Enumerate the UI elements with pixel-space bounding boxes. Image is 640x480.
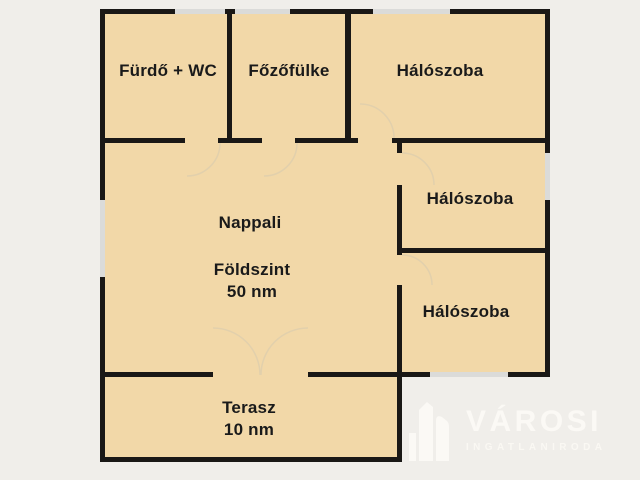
window-bottom-bedroom	[430, 372, 508, 377]
watermark-brand: VÁROSI	[466, 407, 606, 437]
building-tower-right	[436, 416, 449, 461]
door-opening-bathroom	[185, 138, 218, 143]
wall-kitchenette-bedroom	[345, 9, 351, 143]
room-label-terrace: Terasz	[222, 398, 276, 418]
door-opening-bedroom-middle	[397, 153, 402, 185]
door-opening-bedroom-bottom	[397, 255, 402, 285]
building-logo-icon	[406, 397, 454, 461]
window-right-bedroom	[545, 153, 550, 200]
door-opening-bedroom-top	[358, 138, 392, 143]
door-opening-kitchenette	[262, 138, 295, 143]
room-label-bedroom-bottom: Hálószoba	[423, 302, 510, 322]
terrace-area-label: 10 nm	[224, 420, 274, 440]
wall-living-bedrooms	[397, 138, 402, 462]
wall-top	[100, 9, 550, 14]
floor-plan-image: Fürdő + WC Főzőfülke Hálószoba Hálószoba…	[0, 0, 640, 480]
building-bar-left	[409, 433, 416, 461]
window-top-bedroom	[373, 9, 450, 14]
wall-bathroom-kitchenette	[227, 9, 232, 143]
room-label-bedroom-top: Hálószoba	[397, 61, 484, 81]
room-label-living: Nappali	[219, 213, 282, 233]
floor-label: Földszint	[214, 260, 290, 280]
watermark-tagline: INGATLANIRODA	[466, 442, 606, 453]
room-label-kitchenette: Főzőfülke	[248, 61, 329, 81]
room-label-bathroom: Fürdő + WC	[119, 61, 217, 81]
floor-area-label: 50 nm	[227, 282, 277, 302]
agency-watermark: VÁROSI INGATLANIRODA	[406, 397, 606, 461]
window-top-bathroom	[175, 9, 225, 14]
room-label-bedroom-middle: Hálószoba	[427, 189, 514, 209]
wall-bedroom-divider	[400, 248, 550, 253]
wall-terrace-bottom	[100, 457, 402, 462]
watermark-text: VÁROSI INGATLANIRODA	[466, 397, 606, 453]
wall-horizontal-mid	[100, 138, 550, 143]
window-top-kitchenette	[235, 9, 290, 14]
building-tower-main	[419, 402, 433, 461]
window-left-living	[100, 200, 105, 277]
terrace-fill	[100, 375, 402, 462]
